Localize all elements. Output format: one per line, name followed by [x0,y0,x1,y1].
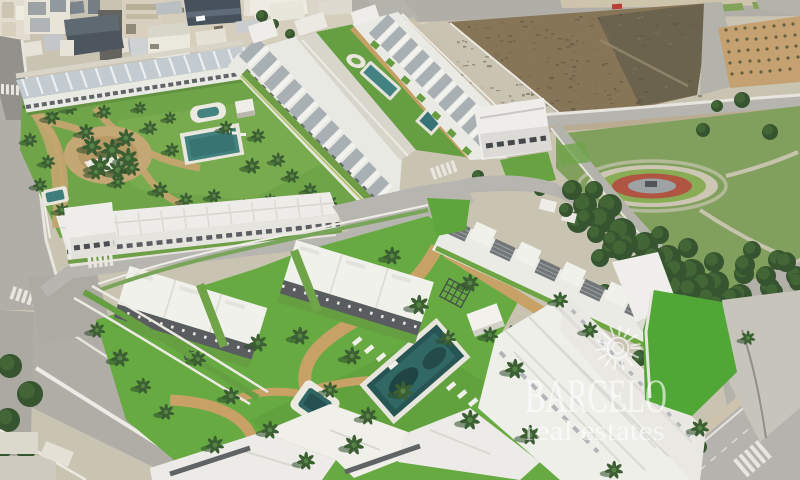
svg-text:real estates: real estates [525,416,665,447]
